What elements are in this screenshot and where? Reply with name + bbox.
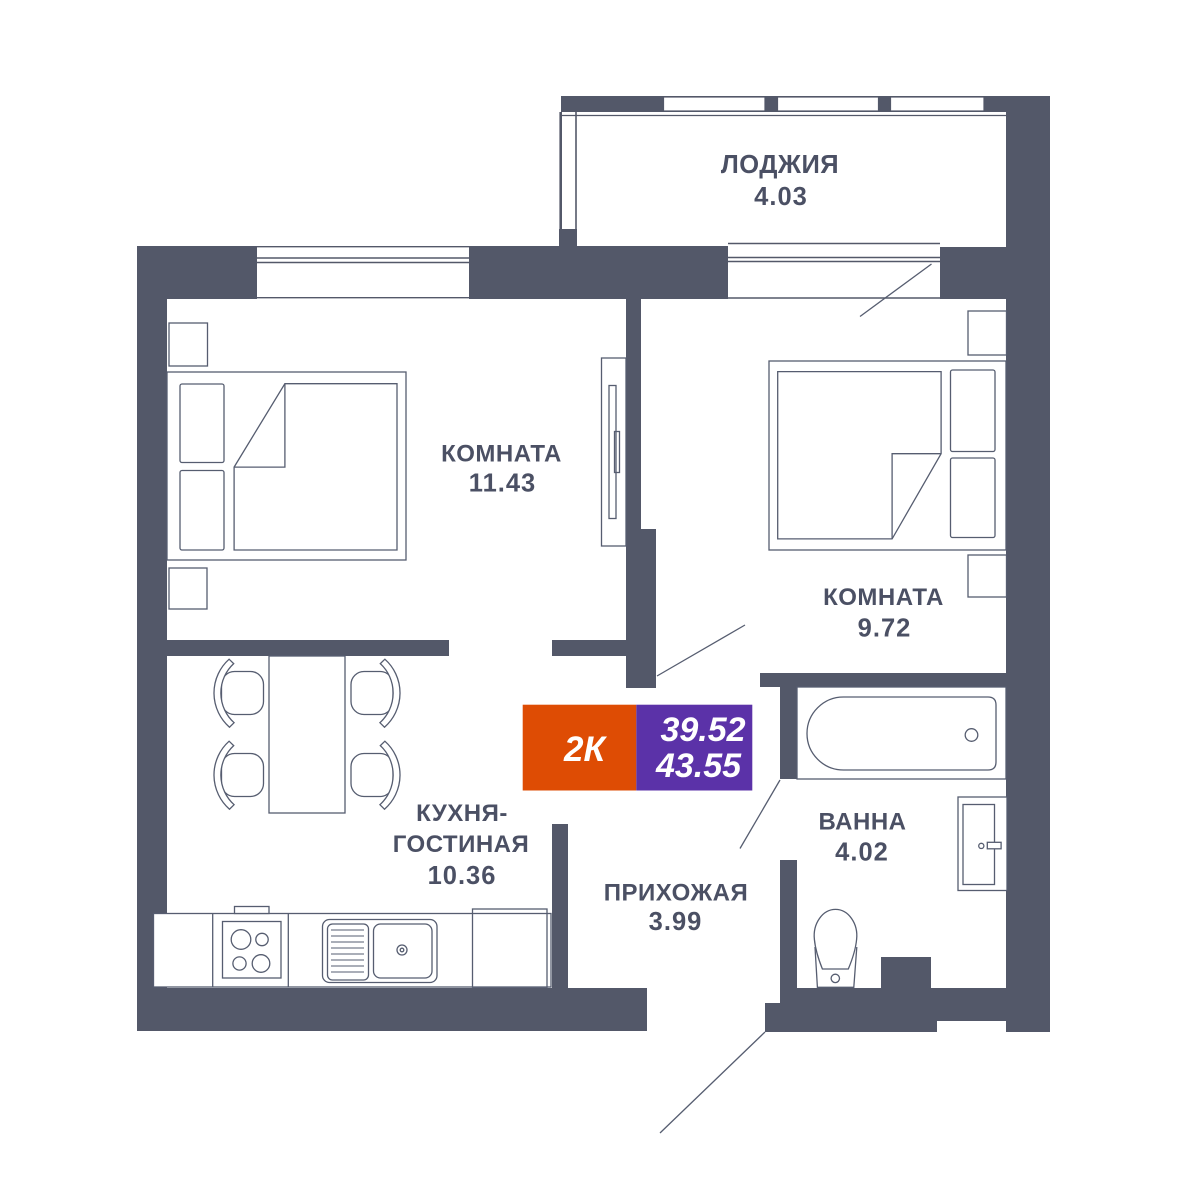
svg-text:2К: 2К bbox=[563, 730, 607, 769]
svg-text:11.43: 11.43 bbox=[469, 470, 536, 498]
svg-text:43.55: 43.55 bbox=[655, 747, 742, 785]
svg-text:3.99: 3.99 bbox=[649, 908, 703, 936]
svg-text:ГОСТИНАЯ: ГОСТИНАЯ bbox=[393, 831, 530, 858]
svg-text:10.36: 10.36 bbox=[428, 862, 497, 890]
svg-text:КУХНЯ-: КУХНЯ- bbox=[416, 800, 508, 827]
svg-text:9.72: 9.72 bbox=[858, 615, 912, 643]
svg-text:КОМНАТА: КОМНАТА bbox=[441, 441, 562, 468]
svg-text:ЛОДЖИЯ: ЛОДЖИЯ bbox=[721, 151, 839, 179]
svg-text:КОМНАТА: КОМНАТА bbox=[823, 584, 944, 611]
svg-text:39.52: 39.52 bbox=[660, 711, 745, 749]
svg-text:ПРИХОЖАЯ: ПРИХОЖАЯ bbox=[604, 880, 749, 907]
svg-text:ВАННА: ВАННА bbox=[819, 809, 907, 836]
svg-text:4.02: 4.02 bbox=[835, 839, 889, 867]
svg-text:4.03: 4.03 bbox=[754, 183, 808, 211]
